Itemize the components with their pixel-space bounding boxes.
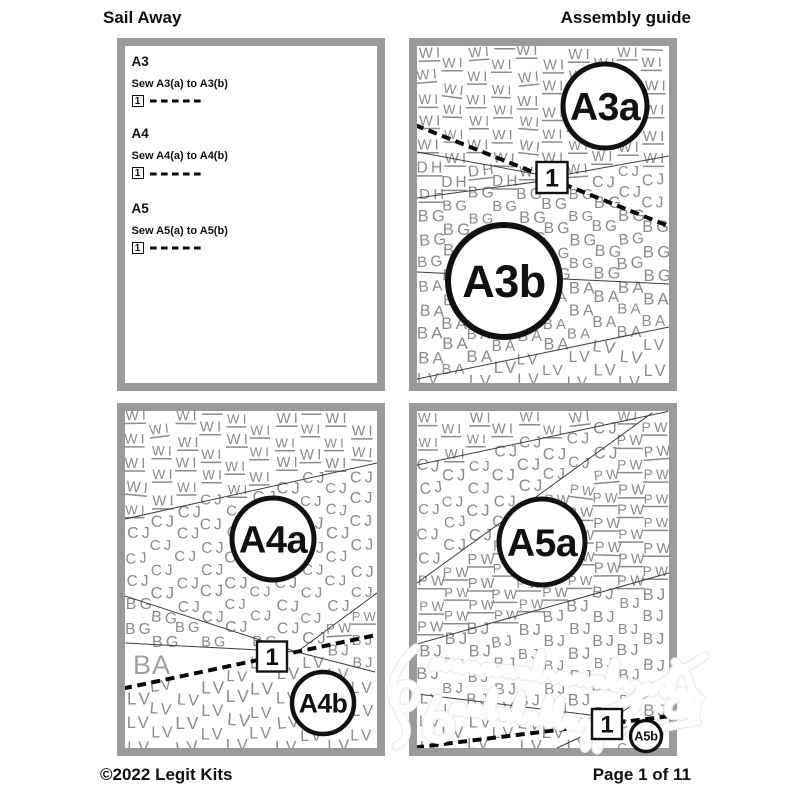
svg-text:WI: WI	[542, 127, 565, 142]
svg-text:WI: WI	[419, 92, 442, 107]
svg-text:WI: WI	[494, 103, 517, 118]
svg-text:LV: LV	[350, 728, 374, 745]
svg-text:WI: WI	[645, 79, 669, 95]
svg-text:CJ: CJ	[200, 517, 225, 534]
svg-text:WI: WI	[469, 114, 492, 129]
svg-text:CJ: CJ	[469, 459, 493, 475]
svg-text:WI: WI	[178, 435, 202, 451]
svg-text:CJ: CJ	[300, 493, 325, 510]
svg-text:1: 1	[265, 644, 278, 671]
svg-text:CJ: CJ	[543, 466, 568, 483]
svg-text:WI: WI	[301, 422, 324, 437]
svg-text:LV: LV	[226, 686, 252, 706]
svg-text:WI: WI	[201, 446, 224, 462]
svg-text:BG: BG	[417, 253, 446, 272]
svg-text:BA: BA	[642, 313, 669, 330]
svg-text:BA: BA	[133, 650, 171, 680]
svg-text:CJ: CJ	[200, 492, 225, 509]
svg-text:BG: BG	[643, 243, 669, 262]
svg-text:WI: WI	[567, 160, 592, 178]
svg-text:WI: WI	[176, 411, 200, 423]
svg-text:WI: WI	[492, 82, 515, 98]
svg-text:CJ: CJ	[325, 572, 350, 589]
svg-text:BG: BG	[442, 198, 470, 214]
svg-text:CJ: CJ	[567, 453, 593, 472]
svg-text:PW: PW	[618, 527, 646, 542]
svg-text:BG: BG	[569, 256, 597, 272]
svg-text:LV: LV	[542, 362, 566, 379]
svg-text:CJ: CJ	[225, 619, 250, 636]
svg-text:WI: WI	[470, 411, 494, 427]
svg-text:CJ: CJ	[442, 466, 469, 484]
svg-text:CJ: CJ	[249, 585, 273, 601]
svg-text:WI: WI	[418, 411, 441, 425]
svg-text:LV: LV	[149, 700, 175, 719]
svg-text:LV: LV	[176, 690, 202, 710]
svg-text:CJ: CJ	[592, 174, 618, 192]
svg-text:WI: WI	[202, 468, 225, 483]
svg-text:LV: LV	[644, 362, 669, 380]
svg-text:BA: BA	[617, 324, 645, 341]
svg-text:CJ: CJ	[202, 609, 227, 626]
svg-text:WI: WI	[152, 444, 175, 459]
svg-text:CJ: CJ	[618, 164, 642, 180]
svg-text:WI: WI	[326, 411, 350, 427]
svg-text:BG: BG	[175, 620, 203, 636]
svg-text:CJ: CJ	[543, 444, 570, 463]
svg-text:WI: WI	[643, 128, 668, 145]
svg-text:BA: BA	[567, 327, 593, 343]
svg-text:CJ: CJ	[327, 598, 352, 615]
svg-text:CJ: CJ	[619, 184, 644, 201]
svg-text:BG: BG	[642, 218, 669, 236]
svg-text:BA: BA	[492, 338, 519, 355]
svg-text:WI: WI	[125, 432, 148, 447]
svg-text:1: 1	[545, 165, 559, 193]
svg-text:WI: WI	[516, 46, 540, 59]
svg-text:CJ: CJ	[151, 584, 178, 603]
svg-text:WI: WI	[492, 421, 516, 437]
svg-text:WI: WI	[125, 411, 149, 423]
svg-text:WI: WI	[442, 55, 466, 71]
svg-text:WI: WI	[250, 445, 272, 460]
svg-text:CJ: CJ	[150, 537, 175, 554]
svg-text:LV: LV	[327, 736, 353, 748]
svg-text:WI: WI	[228, 482, 251, 497]
svg-text:LV: LV	[175, 736, 203, 748]
svg-text:CJ: CJ	[517, 456, 543, 474]
svg-text:PW: PW	[642, 419, 670, 435]
svg-text:CJ: CJ	[567, 431, 593, 448]
svg-text:LV: LV	[643, 337, 667, 354]
svg-text:WI: WI	[176, 456, 200, 472]
svg-text:WI: WI	[520, 411, 544, 425]
svg-text:WI: WI	[442, 421, 465, 436]
svg-text:WI: WI	[641, 54, 665, 70]
svg-text:LV: LV	[302, 655, 327, 672]
svg-text:WI: WI	[200, 420, 225, 436]
svg-text:WI: WI	[592, 149, 616, 165]
svg-text:LV: LV	[250, 678, 276, 698]
svg-text:LV: LV	[469, 372, 494, 383]
svg-text:WI: WI	[152, 466, 175, 482]
svg-text:WI: WI	[300, 447, 325, 463]
svg-text:LV: LV	[250, 705, 275, 722]
svg-text:A4a: A4a	[239, 520, 309, 562]
svg-text:CJ: CJ	[151, 562, 176, 580]
svg-text:CJ: CJ	[350, 490, 376, 507]
svg-text:WI: WI	[249, 469, 273, 485]
svg-text:CJ: CJ	[442, 493, 467, 510]
svg-text:LV: LV	[594, 361, 620, 380]
svg-text:CJ: CJ	[125, 550, 151, 568]
svg-text:LV: LV	[619, 347, 646, 369]
svg-text:WI: WI	[492, 128, 516, 144]
svg-text:CJ: CJ	[178, 599, 203, 616]
svg-text:PW: PW	[644, 467, 669, 482]
svg-text:CJ: CJ	[201, 562, 227, 579]
svg-text:LV: LV	[591, 336, 619, 358]
svg-text:WI: WI	[277, 455, 301, 471]
svg-text:CJ: CJ	[350, 513, 376, 530]
svg-text:PW: PW	[352, 609, 377, 624]
svg-text:WI: WI	[352, 424, 376, 440]
svg-text:WI: WI	[568, 47, 592, 63]
svg-text:WI: WI	[543, 58, 567, 74]
svg-text:CJ: CJ	[468, 481, 493, 498]
svg-text:WI: WI	[519, 113, 543, 130]
svg-text:WI: WI	[517, 94, 541, 110]
svg-text:CJ: CJ	[350, 536, 377, 554]
svg-text:BG: BG	[541, 196, 570, 213]
svg-text:CJ: CJ	[127, 573, 152, 590]
svg-text:LV: LV	[226, 736, 251, 748]
svg-text:WI: WI	[467, 93, 490, 108]
svg-text:CJ: CJ	[276, 597, 303, 616]
svg-text:CJ: CJ	[492, 467, 518, 485]
svg-text:WI: WI	[125, 456, 148, 472]
svg-text:WI: WI	[468, 46, 493, 60]
svg-text:BJ: BJ	[328, 642, 352, 659]
svg-text:WI: WI	[417, 138, 442, 154]
svg-text:CJ: CJ	[200, 582, 227, 600]
svg-text:CJ: CJ	[277, 621, 303, 638]
svg-text:CJ: CJ	[351, 564, 377, 581]
svg-text:CJ: CJ	[417, 526, 442, 543]
svg-text:WI: WI	[227, 432, 251, 448]
svg-text:CJ: CJ	[417, 455, 444, 476]
svg-text:CJ: CJ	[201, 540, 226, 557]
svg-text:BA: BA	[617, 301, 644, 318]
svg-text:CJ: CJ	[418, 501, 443, 518]
svg-text:WI: WI	[419, 46, 444, 62]
svg-text:WI: WI	[250, 423, 273, 438]
svg-text:WI: WI	[177, 480, 200, 495]
svg-text:A5b: A5b	[634, 729, 658, 744]
svg-text:BA: BA	[592, 314, 619, 331]
svg-text:CJ: CJ	[350, 470, 376, 487]
svg-text:LV: LV	[567, 374, 591, 384]
svg-text:CJ: CJ	[519, 435, 544, 452]
svg-text:PW: PW	[644, 515, 669, 530]
svg-text:WI: WI	[617, 46, 641, 61]
svg-text:LV: LV	[618, 374, 643, 383]
svg-text:WI: WI	[467, 432, 489, 447]
svg-text:CJ: CJ	[224, 575, 250, 593]
svg-text:BG: BG	[592, 218, 621, 235]
svg-text:LV: LV	[226, 668, 251, 686]
svg-text:WI: WI	[275, 436, 298, 451]
svg-text:CJ: CJ	[301, 585, 326, 601]
svg-text:CJ: CJ	[177, 525, 203, 542]
svg-text:WI: WI	[445, 151, 470, 167]
svg-text:CJ: CJ	[151, 513, 178, 531]
svg-text:CJ: CJ	[467, 502, 493, 520]
svg-text:WI: WI	[351, 443, 376, 461]
svg-text:LV: LV	[201, 725, 226, 743]
svg-text:LV: LV	[201, 677, 227, 697]
svg-text:PW: PW	[617, 457, 646, 472]
svg-text:LV: LV	[127, 739, 152, 748]
svg-text:LV: LV	[151, 725, 175, 742]
svg-text:CJ: CJ	[325, 480, 350, 497]
svg-text:CJ: CJ	[250, 608, 274, 624]
svg-text:WI: WI	[225, 459, 248, 474]
svg-text:WI: WI	[445, 447, 468, 462]
svg-text:CJ: CJ	[177, 576, 202, 593]
svg-text:CJ: CJ	[174, 548, 199, 565]
svg-text:LV: LV	[249, 725, 274, 743]
svg-text:CJ: CJ	[325, 501, 351, 520]
svg-text:CJ: CJ	[300, 611, 324, 627]
svg-text:A3b: A3b	[462, 256, 546, 307]
svg-text:WI: WI	[277, 411, 301, 427]
svg-text:BA: BA	[643, 289, 669, 308]
svg-text:WI: WI	[643, 151, 667, 167]
svg-text:WI: WI	[417, 65, 440, 83]
svg-text:DH: DH	[441, 174, 470, 191]
svg-text:WI: WI	[491, 56, 515, 72]
svg-text:CJ: CJ	[225, 597, 249, 613]
svg-text:WI: WI	[467, 69, 490, 84]
svg-text:A4b: A4b	[299, 688, 348, 718]
svg-text:LV: LV	[201, 702, 226, 720]
svg-text:CJ: CJ	[642, 195, 667, 212]
svg-text:WI: WI	[227, 412, 250, 427]
svg-text:LV: LV	[275, 739, 300, 748]
svg-text:BG: BG	[644, 266, 670, 285]
svg-text:WI: WI	[419, 435, 442, 450]
svg-text:LV: LV	[569, 349, 593, 366]
svg-text:CJ: CJ	[351, 584, 376, 601]
svg-text:A3a: A3a	[570, 86, 641, 129]
svg-text:WI: WI	[443, 102, 466, 118]
svg-text:WI: WI	[324, 435, 347, 450]
svg-text:LV: LV	[175, 713, 201, 733]
svg-text:CJ: CJ	[641, 171, 668, 190]
svg-text:1: 1	[600, 712, 613, 739]
svg-text:PW: PW	[644, 491, 669, 506]
svg-text:LV: LV	[517, 370, 542, 383]
svg-text:BA: BA	[442, 362, 468, 378]
svg-text:WI: WI	[152, 494, 176, 510]
svg-text:CJ: CJ	[325, 548, 350, 566]
